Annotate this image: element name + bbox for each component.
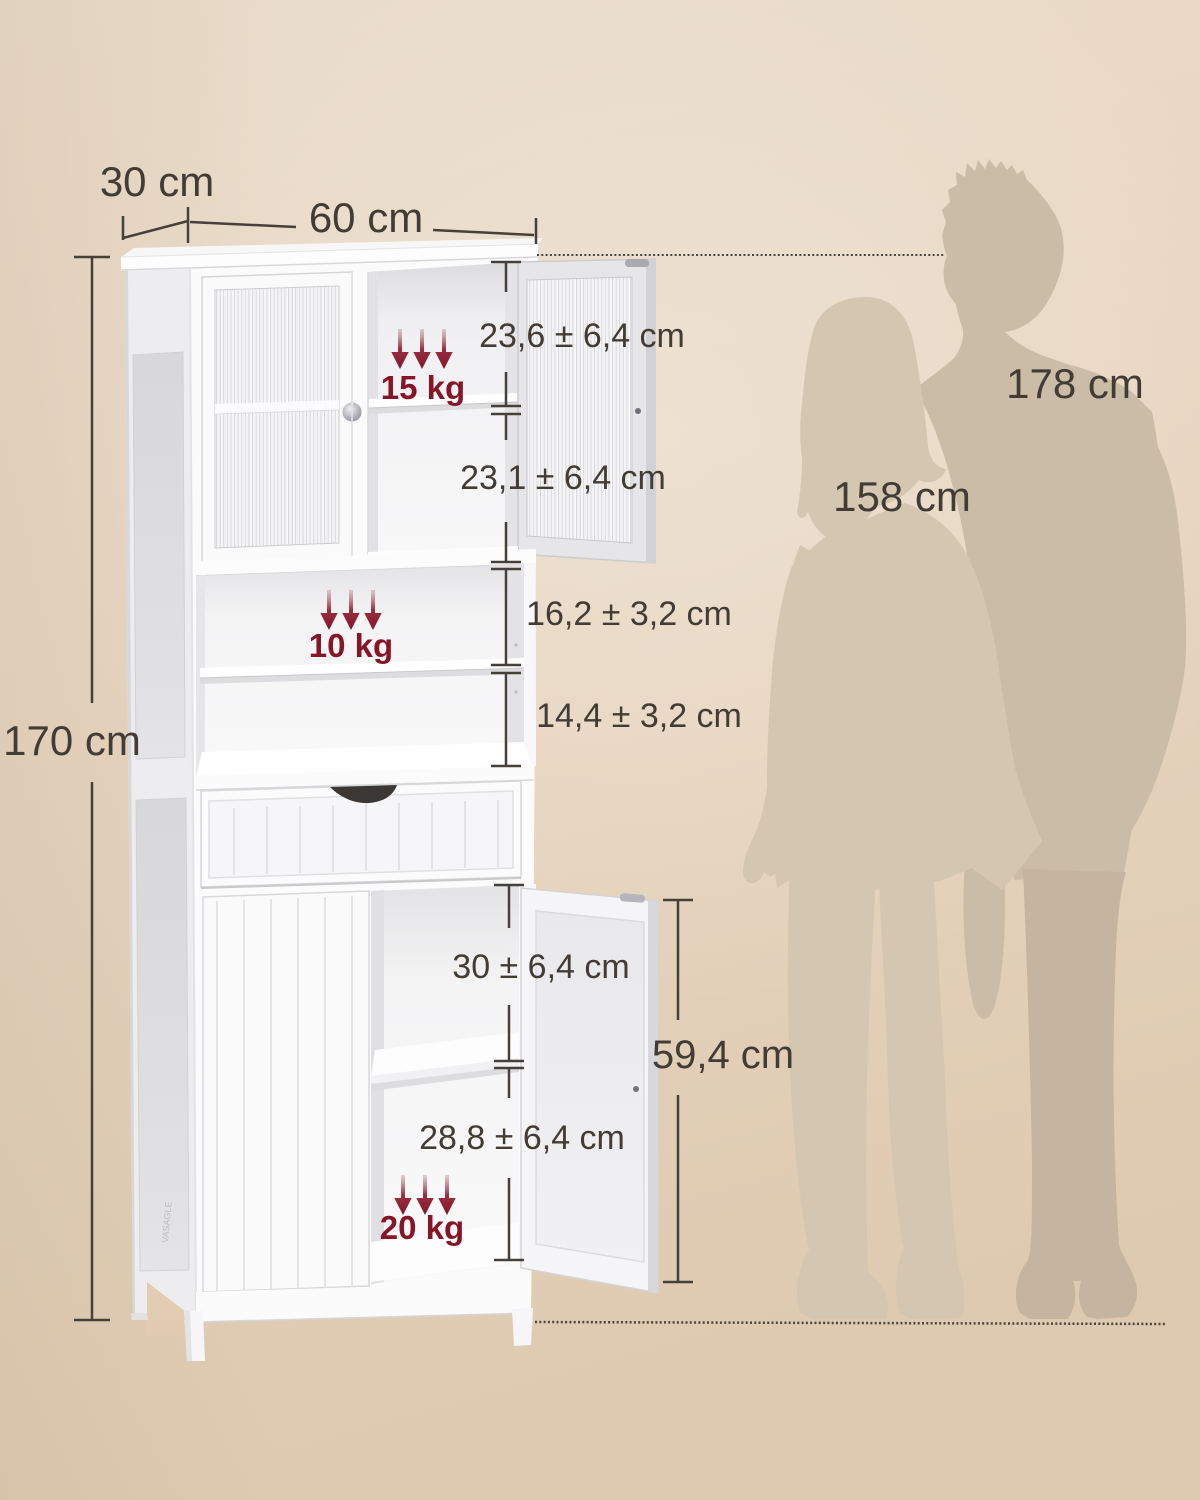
svg-text:23,6 ± 6,4 cm: 23,6 ± 6,4 cm [479, 317, 685, 355]
svg-text:30 cm: 30 cm [100, 158, 214, 205]
svg-text:23,1 ± 6,4 cm: 23,1 ± 6,4 cm [460, 459, 666, 497]
svg-text:170 cm: 170 cm [3, 717, 141, 764]
svg-text:15 kg: 15 kg [381, 369, 465, 406]
svg-text:16,2 ± 3,2 cm: 16,2 ± 3,2 cm [526, 595, 732, 633]
svg-text:20 kg: 20 kg [380, 1209, 464, 1246]
svg-text:158 cm: 158 cm [833, 473, 971, 520]
svg-text:10 kg: 10 kg [309, 627, 393, 664]
svg-text:60 cm: 60 cm [309, 194, 423, 241]
svg-text:14,4 ± 3,2 cm: 14,4 ± 3,2 cm [536, 697, 742, 735]
svg-text:59,4 cm: 59,4 cm [652, 1033, 794, 1077]
svg-text:178 cm: 178 cm [1006, 360, 1144, 407]
svg-text:30 ± 6,4 cm: 30 ± 6,4 cm [452, 948, 629, 986]
svg-text:28,8 ± 6,4 cm: 28,8 ± 6,4 cm [419, 1119, 625, 1157]
